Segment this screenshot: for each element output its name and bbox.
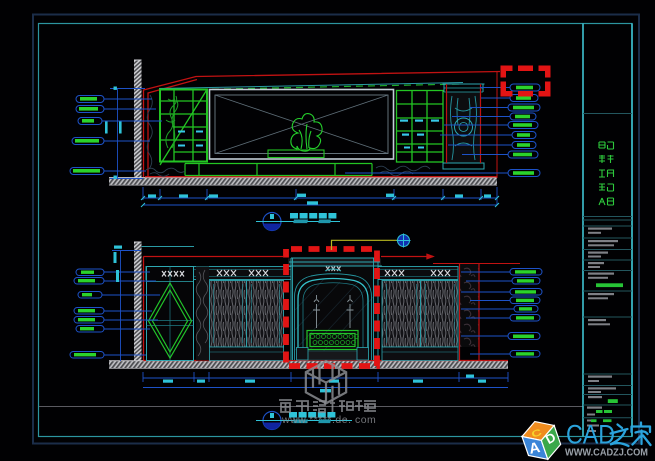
svg-text:WWW.CADZJ.COM: WWW.CADZJ.COM: [565, 448, 648, 459]
svg-text:CAD: CAD: [566, 420, 615, 450]
svg-text:www.*****.de. com: www.*****.de. com: [281, 414, 376, 426]
